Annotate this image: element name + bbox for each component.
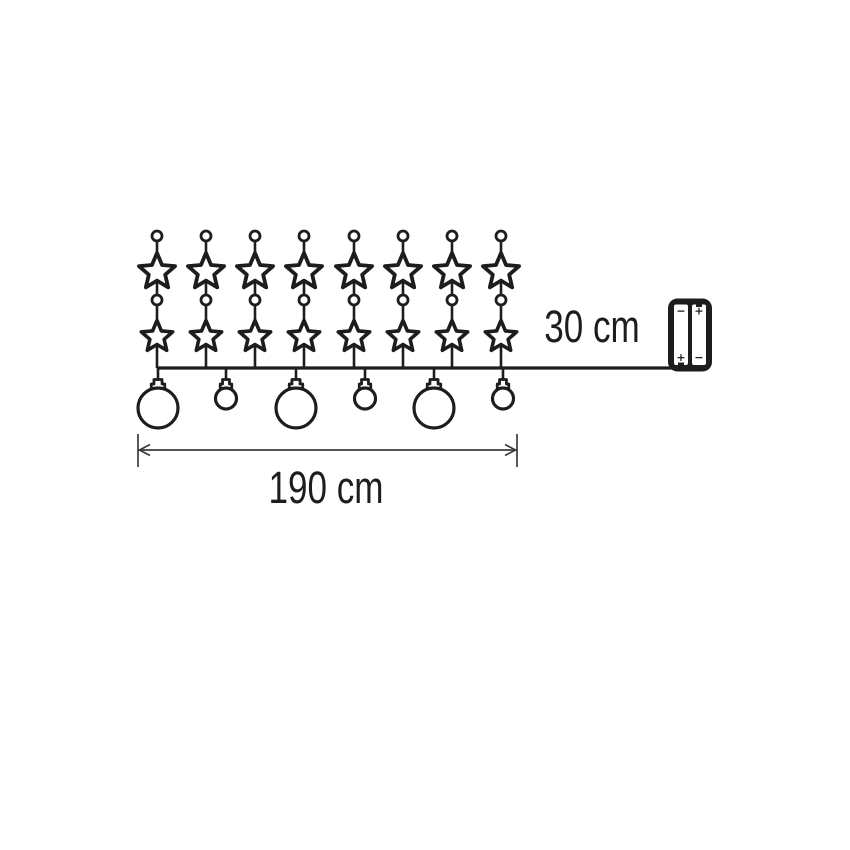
- ball-icon: [216, 388, 237, 409]
- garland-length-label: 190 cm: [268, 462, 383, 513]
- garland-dimension-diagram: −++− 190 cm 30 cm: [0, 0, 850, 850]
- micro-led-dot: [447, 231, 457, 241]
- star-icon: [190, 321, 221, 351]
- star-string: [139, 231, 175, 368]
- star-icon: [436, 321, 467, 351]
- micro-led-dot: [398, 295, 408, 305]
- star-icon: [336, 253, 372, 287]
- star-icon: [141, 321, 172, 351]
- lead-length-text: 30 cm: [544, 301, 640, 352]
- micro-led-dot: [201, 231, 211, 241]
- star-icon: [385, 253, 421, 287]
- micro-led-dot: [496, 295, 506, 305]
- micro-led-dot: [152, 295, 162, 305]
- star-icon: [483, 253, 519, 287]
- star-strings: [139, 231, 519, 368]
- ball-icon: [138, 388, 178, 428]
- battery-box: −++−: [668, 299, 712, 372]
- lead-length-label-group: 30 cm: [544, 301, 640, 352]
- ball-light-small: [493, 368, 514, 409]
- lead-length-label: 30 cm: [544, 301, 640, 352]
- ball-light-small: [355, 368, 376, 409]
- ball-icon: [493, 388, 514, 409]
- star-icon: [288, 321, 319, 351]
- battery-sign: −: [694, 351, 703, 364]
- star-string: [336, 231, 372, 368]
- micro-led-dot: [201, 295, 211, 305]
- star-icon: [434, 253, 470, 287]
- battery-sign: −: [676, 305, 685, 318]
- micro-led-dot: [299, 295, 309, 305]
- star-icon: [237, 253, 273, 287]
- micro-led-dot: [299, 231, 309, 241]
- star-string: [385, 231, 421, 368]
- micro-led-dot: [349, 231, 359, 241]
- micro-led-dot: [349, 295, 359, 305]
- battery-sign: +: [694, 305, 703, 318]
- ball-light-large: [276, 368, 316, 428]
- star-string: [434, 231, 470, 368]
- diagram-canvas: −++− 190 cm 30 cm: [0, 0, 850, 850]
- star-icon: [485, 321, 516, 351]
- star-icon: [188, 253, 224, 287]
- star-string: [483, 231, 519, 368]
- battery-sign: +: [676, 351, 685, 364]
- star-icon: [239, 321, 270, 351]
- garland-length-text: 190 cm: [268, 462, 383, 513]
- star-string: [188, 231, 224, 368]
- star-icon: [286, 253, 322, 287]
- ball-icon: [414, 388, 454, 428]
- ball-lights: [138, 368, 514, 428]
- ball-light-large: [414, 368, 454, 428]
- micro-led-dot: [496, 231, 506, 241]
- ball-light-large: [138, 368, 178, 428]
- star-icon: [338, 321, 369, 351]
- dimension-190: 190 cm: [138, 434, 517, 513]
- micro-led-dot: [398, 231, 408, 241]
- ball-light-small: [216, 368, 237, 409]
- micro-led-dot: [447, 295, 457, 305]
- micro-led-dot: [250, 295, 260, 305]
- star-string: [237, 231, 273, 368]
- ball-icon: [355, 388, 376, 409]
- star-icon: [387, 321, 418, 351]
- ball-icon: [276, 388, 316, 428]
- micro-led-dot: [152, 231, 162, 241]
- star-icon: [139, 253, 175, 287]
- star-string: [286, 231, 322, 368]
- micro-led-dot: [250, 231, 260, 241]
